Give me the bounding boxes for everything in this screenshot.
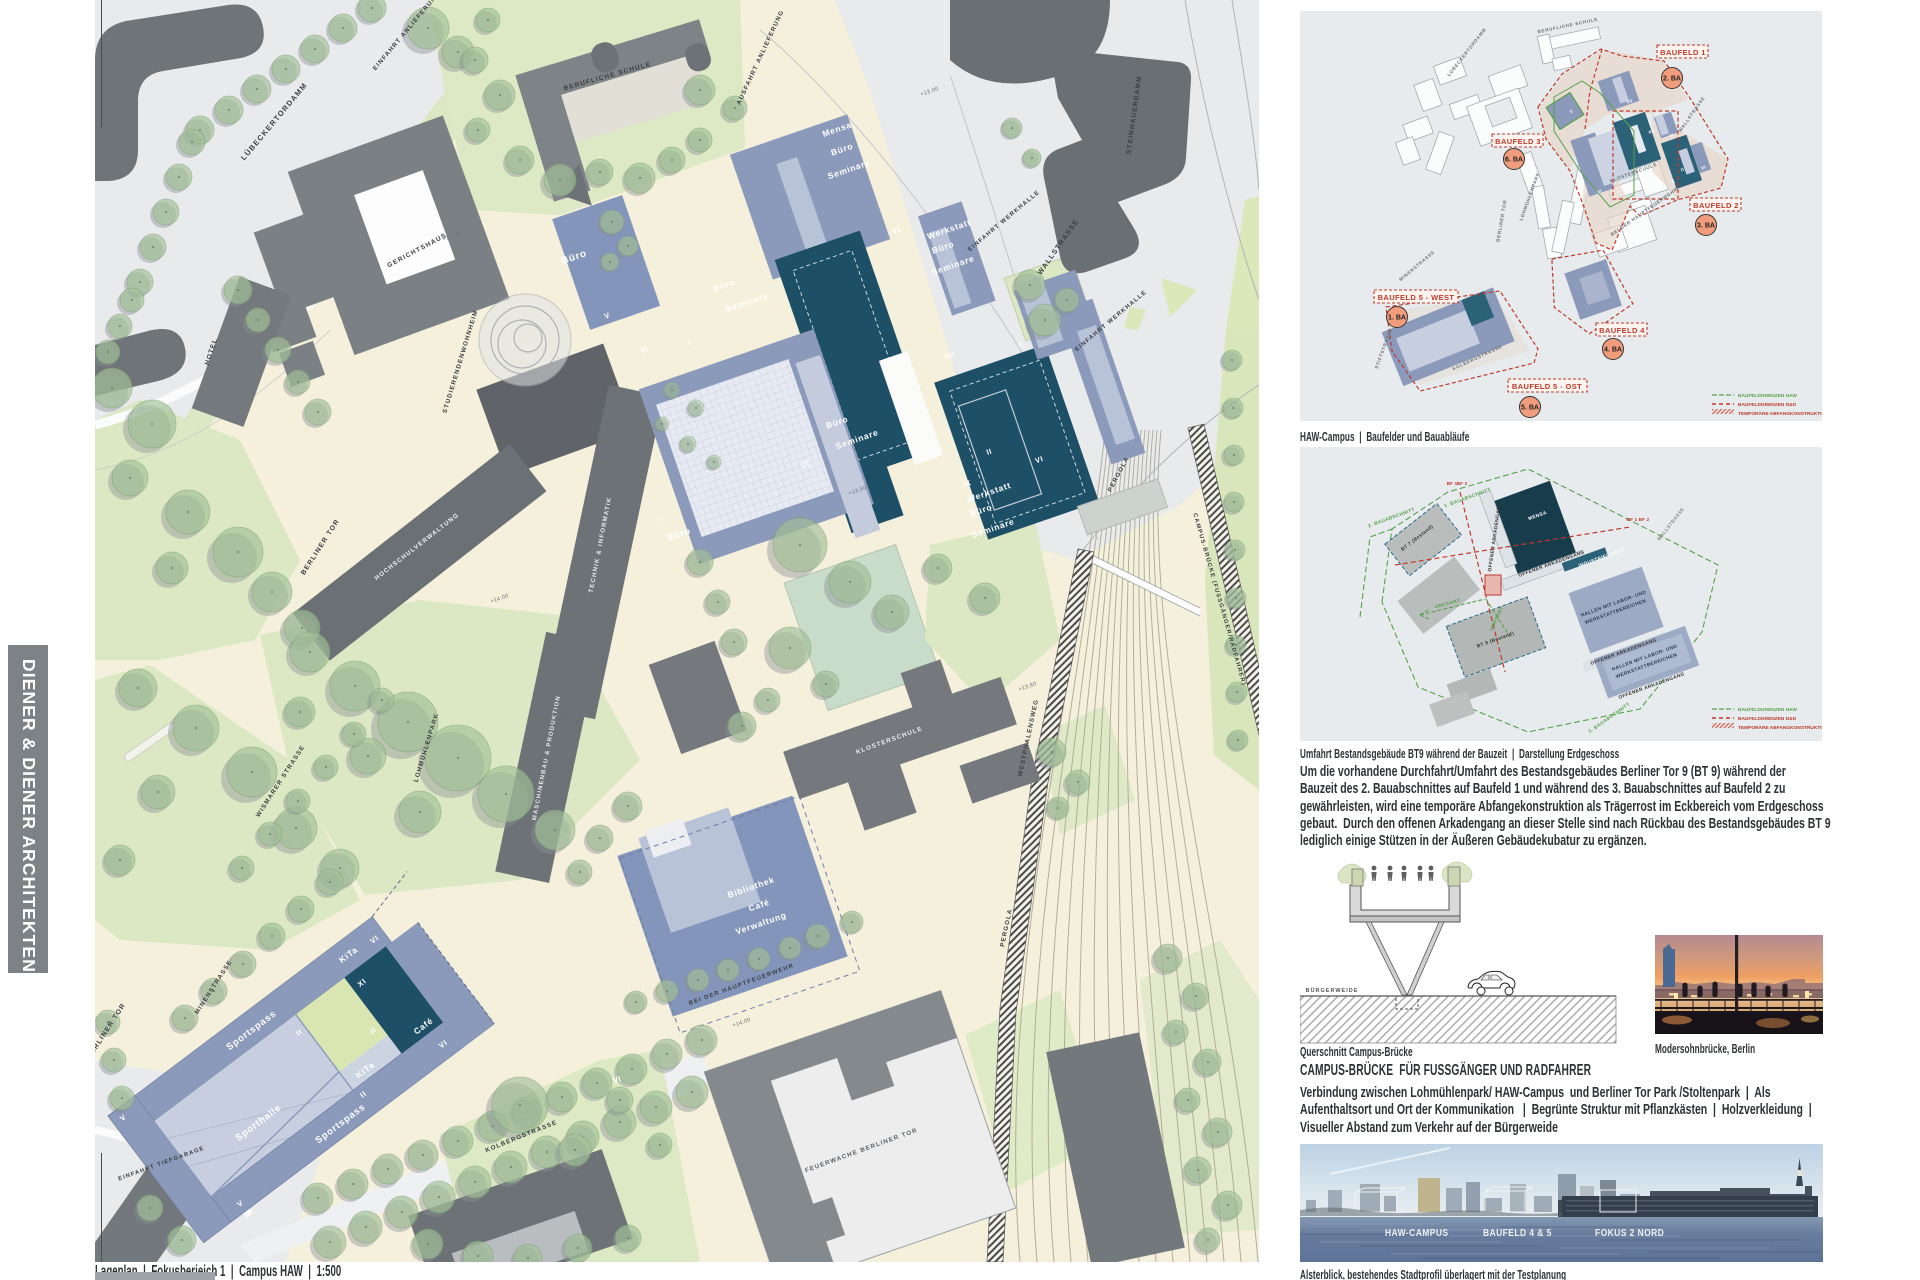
svg-text:BAUFELDGRENZEN D&D: BAUFELDGRENZEN D&D bbox=[1738, 402, 1797, 408]
svg-text:BAUFELDGRENZEN D&D: BAUFELDGRENZEN D&D bbox=[1738, 716, 1797, 722]
svg-text:BAUFELD 1: BAUFELD 1 bbox=[1660, 48, 1706, 57]
svg-text:BÜRGERWEIDE: BÜRGERWEIDE bbox=[1306, 987, 1359, 994]
svg-text:HAW-CAMPUS: HAW-CAMPUS bbox=[1385, 1227, 1448, 1238]
svg-text:BF 1 BF 2: BF 1 BF 2 bbox=[1627, 517, 1650, 522]
svg-text:TEMPORÄRE ABFANGKONSTRUKTION: TEMPORÄRE ABFANGKONSTRUKTION bbox=[1738, 410, 1822, 417]
svg-text:BAUFELD 5 - WEST: BAUFELD 5 - WEST bbox=[1378, 293, 1455, 302]
svg-text:2. BA: 2. BA bbox=[1663, 76, 1681, 83]
svg-text:BAUFELD 5 - OST: BAUFELD 5 - OST bbox=[1512, 382, 1582, 391]
svg-text:FOKUS 2 NORD: FOKUS 2 NORD bbox=[1595, 1227, 1664, 1238]
svg-text:BAUFELDGRENZEN HAW: BAUFELDGRENZEN HAW bbox=[1738, 393, 1797, 399]
svg-text:BAUFELD 4 & 5: BAUFELD 4 & 5 bbox=[1483, 1227, 1552, 1238]
svg-text:3. BA: 3. BA bbox=[1697, 223, 1715, 230]
svg-text:BAUFELD 4: BAUFELD 4 bbox=[1599, 326, 1645, 335]
svg-text:BAUFELD 3: BAUFELD 3 bbox=[1495, 137, 1541, 146]
svg-text:4. BA: 4. BA bbox=[1604, 347, 1622, 354]
svg-text:TEMPORÄRE ABFANGKONSTRUKTION: TEMPORÄRE ABFANGKONSTRUKTION bbox=[1738, 724, 1822, 731]
svg-text:BAUFELDGRENZEN HAW: BAUFELDGRENZEN HAW bbox=[1738, 707, 1797, 713]
svg-text:6. BA: 6. BA bbox=[1505, 157, 1523, 164]
svg-text:BF 3: BF 3 bbox=[1457, 481, 1468, 486]
svg-text:5. BA: 5. BA bbox=[1521, 405, 1539, 412]
svg-text:BAUFELD 2: BAUFELD 2 bbox=[1693, 201, 1739, 210]
svg-text:1. BA: 1. BA bbox=[1388, 315, 1406, 322]
